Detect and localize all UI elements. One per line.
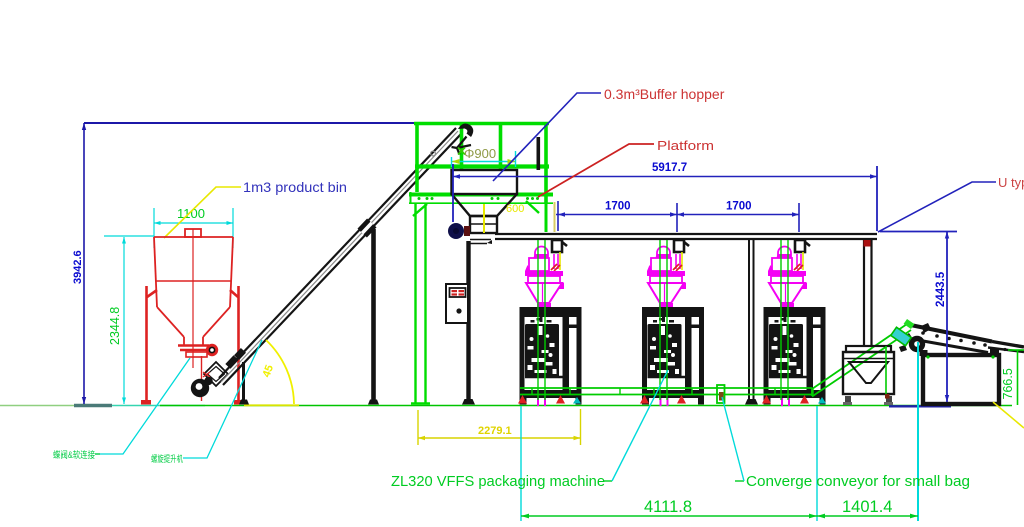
svg-text:0.3m³Buffer hopper: 0.3m³Buffer hopper [604, 86, 725, 102]
svg-text:1700: 1700 [605, 201, 631, 213]
svg-text:ZL320 VFFS packaging machine: ZL320 VFFS packaging machine [391, 473, 605, 490]
svg-text:3942.6: 3942.6 [72, 250, 84, 284]
svg-text:蝶阀&软连接: 蝶阀&软连接 [53, 449, 95, 460]
svg-text:2443.5: 2443.5 [935, 271, 947, 307]
svg-text:2279.1: 2279.1 [478, 425, 512, 437]
svg-text:1401.4: 1401.4 [842, 498, 892, 516]
svg-text:1700: 1700 [726, 201, 752, 213]
svg-text:2344.8: 2344.8 [108, 307, 122, 345]
svg-text:1m3 product bin: 1m3 product bin [243, 179, 347, 195]
svg-text:Φ900: Φ900 [464, 146, 496, 161]
svg-text:螺旋提升机: 螺旋提升机 [151, 453, 183, 464]
svg-text:U typ: U typ [998, 175, 1024, 190]
svg-text:4111.8: 4111.8 [644, 498, 692, 516]
svg-text:766.5: 766.5 [1001, 368, 1015, 399]
svg-text:5917.7: 5917.7 [652, 162, 687, 174]
svg-text:Converge conveyor for small ba: Converge conveyor for small bag [746, 473, 970, 490]
svg-text:1100: 1100 [177, 206, 205, 221]
svg-text:600: 600 [506, 203, 524, 215]
svg-text:Platform: Platform [657, 138, 714, 153]
